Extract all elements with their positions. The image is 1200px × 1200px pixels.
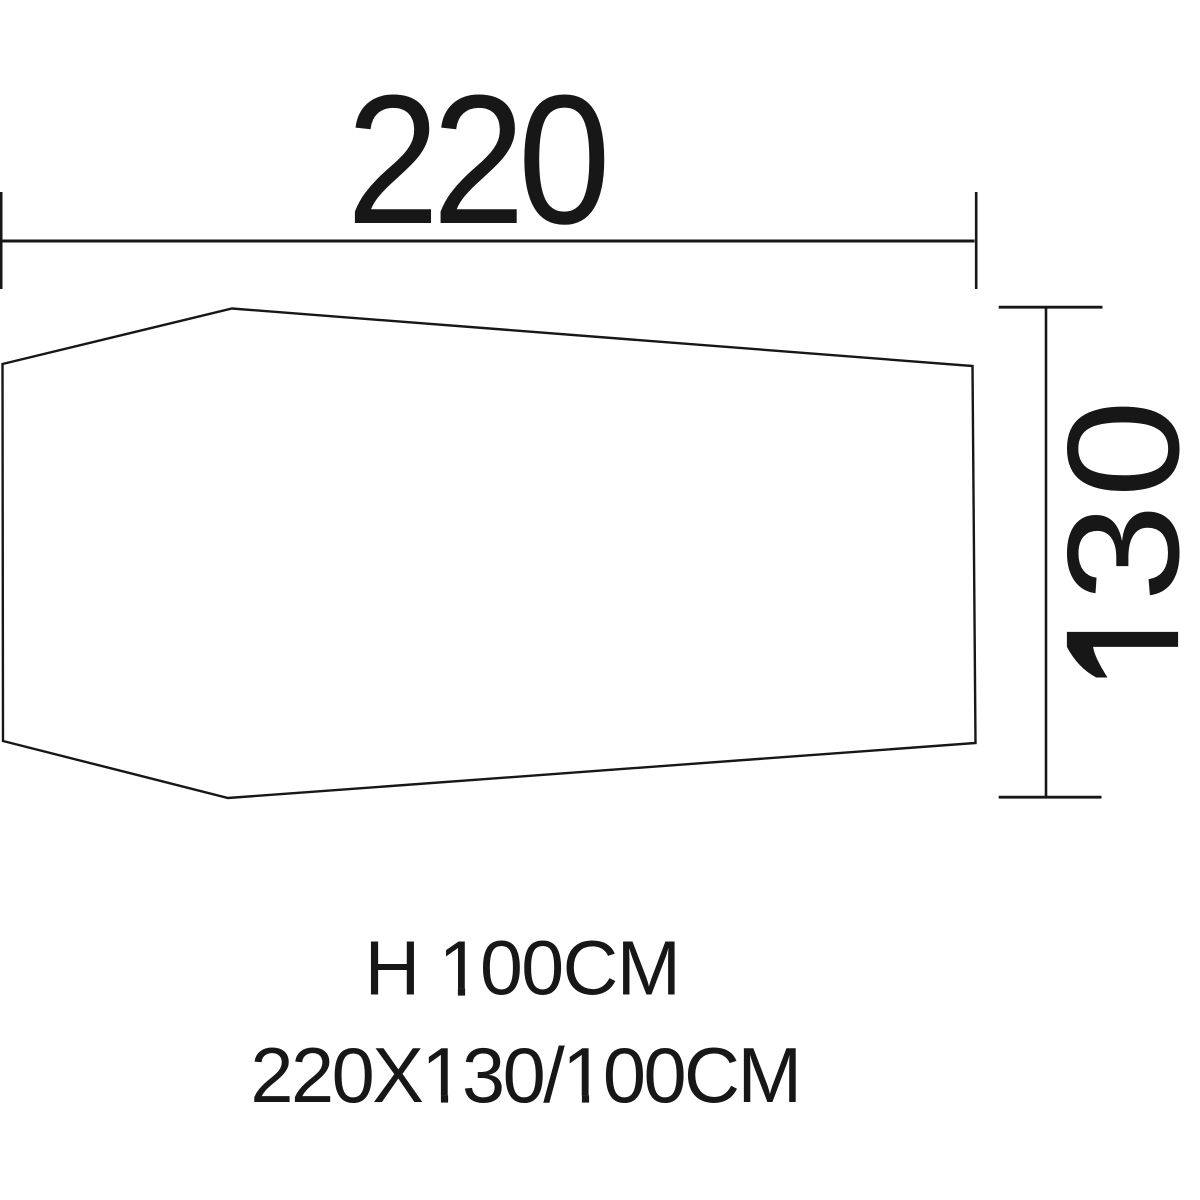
svg-text:30: 30 — [1034, 394, 1200, 602]
svg-text:220X130/100CM: 220X130/100CM — [250, 1033, 799, 1119]
svg-text:H 100CM: H 100CM — [365, 926, 680, 1012]
svg-text:220: 220 — [347, 56, 606, 262]
